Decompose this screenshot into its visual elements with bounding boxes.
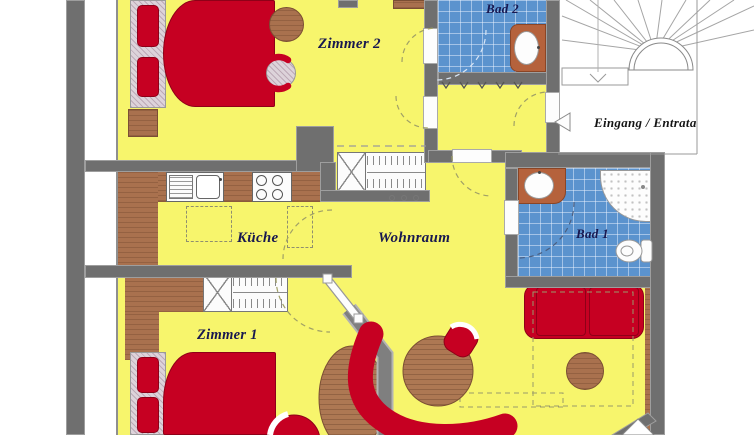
floor-plan: Zimmer 2 Bad 2 Eingang / Entrata Küche W… — [0, 0, 754, 435]
carpets — [460, 292, 633, 407]
plan-overlay — [0, 0, 754, 435]
room-label-zimmer2: Zimmer 2 — [318, 36, 381, 53]
room-label-wohnraum: Wohnraum — [378, 230, 450, 247]
wardrobe-slider-dots — [390, 196, 419, 201]
room-label-zimmer1: Zimmer 1 — [197, 327, 258, 344]
shower-drain-icon — [641, 185, 645, 189]
door-swing-arcs — [276, 28, 574, 332]
dining-carpet — [460, 393, 563, 407]
room-label-eingang: Eingang / Entrata — [594, 115, 697, 131]
entrance-arrow-icon — [555, 113, 570, 131]
coat-hooks-icon — [442, 82, 522, 88]
stair-landing — [562, 68, 628, 85]
room-label-bad1: Bad 1 — [576, 226, 609, 242]
toilet-bad1 — [616, 240, 652, 262]
dining-set — [268, 309, 505, 435]
zimmer1-door-leaf — [323, 274, 363, 323]
room-label-kueche: Küche — [237, 230, 279, 247]
balcony-door-marker — [612, 413, 656, 435]
room-label-bad2: Bad 2 — [486, 1, 519, 17]
living-carpet — [533, 292, 633, 406]
chair-zimmer2-back — [263, 57, 288, 89]
dining-chair-bottom — [268, 414, 320, 435]
